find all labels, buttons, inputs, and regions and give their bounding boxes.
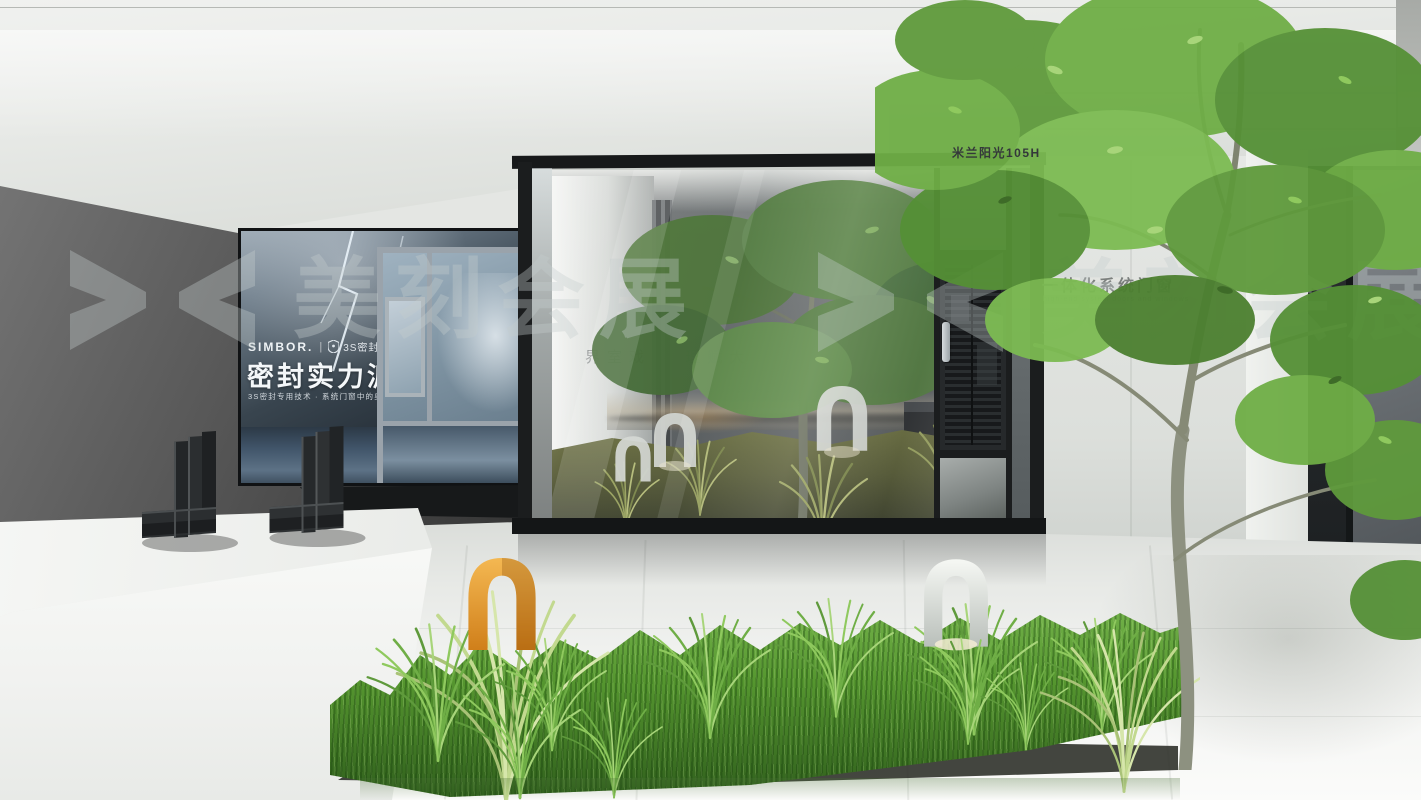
watermark-text: 美刻会展 (293, 256, 701, 344)
corner-profile-sample (255, 420, 375, 550)
foreground-tree (875, 0, 1421, 770)
top-label: 米兰阳光105H (952, 144, 1041, 161)
watermark: 美刻会展 (70, 250, 701, 350)
billboard-headline: 密封实力派 (247, 355, 397, 394)
bowtie-logo (70, 250, 255, 350)
showroom-render: SIMBOR. | 3S密封技术 密封实力派 3S密封专用技术 · 系统门窗中的… (0, 0, 1421, 800)
billboard-tagline: 3S密封专用技术 · 系统门窗中的奥迪 (248, 391, 392, 402)
grass-floor-reflection (360, 778, 1180, 800)
window-sample-lower-pane (383, 426, 527, 483)
corner-profile-sample (130, 425, 245, 555)
